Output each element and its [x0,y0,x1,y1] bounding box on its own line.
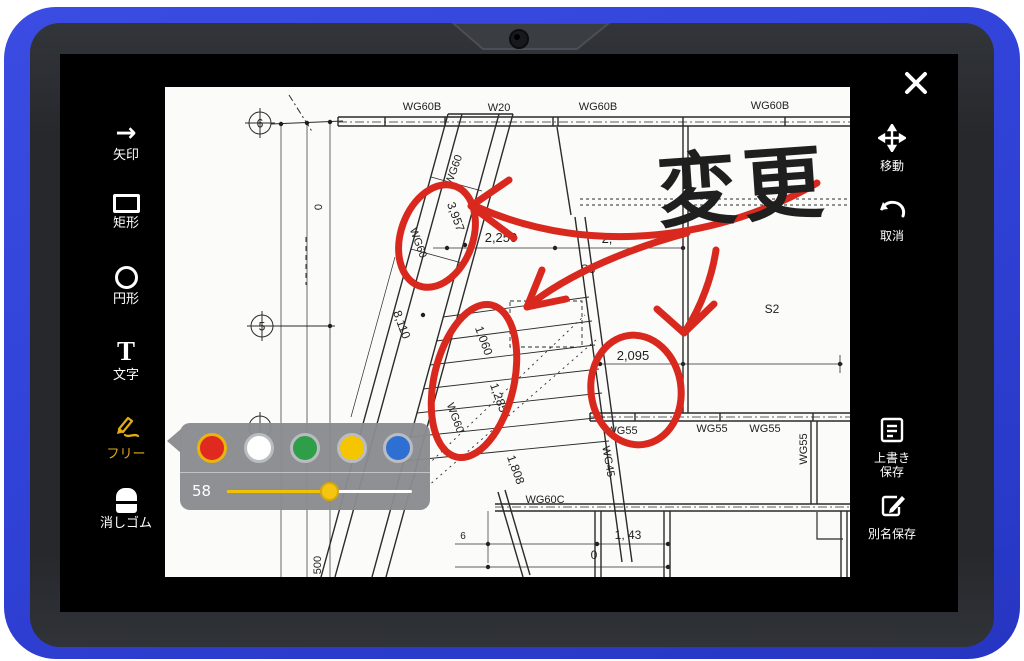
pen-width-slider[interactable] [227,490,412,493]
tool-arrow[interactable]: → 矢印 [88,120,164,164]
tool-text[interactable]: T 文字 [88,338,164,384]
tool-text-label: 文字 [113,369,139,384]
blueprint-label: WG45 [599,445,616,478]
grid-bubble-number: 6 [257,117,264,131]
blueprint-label: 1, 43 [615,528,642,542]
tool-save-label: 上書き保存 [874,452,910,480]
blueprint-label: 3,957 [444,200,468,233]
color-swatch-white[interactable] [244,433,274,463]
slider-thumb[interactable] [320,482,339,501]
blueprint-label: WG60B [579,101,618,113]
tool-eraser[interactable]: 消しゴム [88,488,164,532]
tool-save-as[interactable]: 別名保存 [854,492,930,542]
color-swatch-blue[interactable] [383,433,413,463]
tool-save-as-label: 別名保存 [868,528,916,542]
pen-width-row: 58 [180,473,430,510]
blueprint-label: 6 [460,531,466,542]
text-icon: T [117,338,135,365]
app-screen: WG60BW20WG60BWG60BWG603,957WG602,2502,S3… [60,54,958,612]
blueprint-label: WG60B [751,100,790,112]
tool-undo[interactable]: 取消 [854,196,930,244]
slider-fill [227,490,329,493]
eraser-icon [116,488,137,513]
pen-width-value: 58 [192,482,211,500]
red-arrow-3 [657,250,716,333]
tool-arrow-label: 矢印 [113,149,139,164]
blueprint-label: WG60B [403,101,442,113]
blueprint-label: 1,808 [504,453,528,486]
red-ellipse-1 [385,174,489,298]
tool-save-overwrite[interactable]: 上書き保存 [854,416,930,480]
grid-bubble-labels: 65 [257,117,266,334]
screenshot-stage: WG60BW20WG60BWG60BWG603,957WG602,2502,S3… [0,0,1024,661]
blueprint-label: WG55 [696,423,727,435]
color-swatch-yellow[interactable] [337,433,367,463]
undo-icon [877,196,907,226]
circle-icon [115,266,138,289]
tool-rectangle[interactable]: 矩形 [88,194,164,232]
tool-rectangle-label: 矩形 [113,217,139,232]
close-button[interactable] [878,70,954,100]
handwritten-note: 変更 [654,137,832,238]
notch-shape [453,23,609,49]
tool-free-label: フリー [106,448,145,463]
tool-circle[interactable]: 円形 [88,266,164,308]
pen-options-popup: 58 [180,423,430,510]
blueprint-label: 2,095 [617,348,650,363]
tool-move-label: 移動 [880,160,904,174]
blueprint-label: W20 [488,102,511,114]
save-doc-icon [878,416,906,448]
camera-notch [451,23,611,53]
blueprint-label: WG55 [749,423,780,435]
blueprint-label: 0 [591,548,598,562]
blueprint-label: 1,060 [472,324,496,357]
grid-bubble-number: 5 [259,320,266,334]
popup-pointer [167,429,181,453]
arrow-right-icon: → [116,120,137,145]
close-icon [903,70,929,100]
move-icon [878,124,906,156]
tool-eraser-label: 消しゴム [100,517,152,532]
tool-circle-label: 円形 [113,293,139,308]
blueprint-label: WG55 [798,433,810,464]
blueprint-label: 500 [312,556,324,574]
blueprint-label: WG60C [525,494,564,506]
blueprint-label: WG60 [444,401,466,434]
blueprint-label: 8,110 [390,309,413,341]
rectangle-icon [113,194,140,213]
color-swatch-green[interactable] [290,433,320,463]
color-swatch-row [180,423,430,472]
save-as-icon [877,492,907,524]
blueprint-label: S2 [765,302,780,316]
color-swatch-red[interactable] [197,433,227,463]
tool-undo-label: 取消 [880,230,904,244]
tool-free-draw[interactable]: フリー [88,414,164,463]
blueprint-label: 0 [313,204,325,210]
pencil-icon [111,414,141,444]
tool-move[interactable]: 移動 [854,124,930,174]
camera-lens [514,34,520,40]
red-ellipse-2 [417,296,530,466]
